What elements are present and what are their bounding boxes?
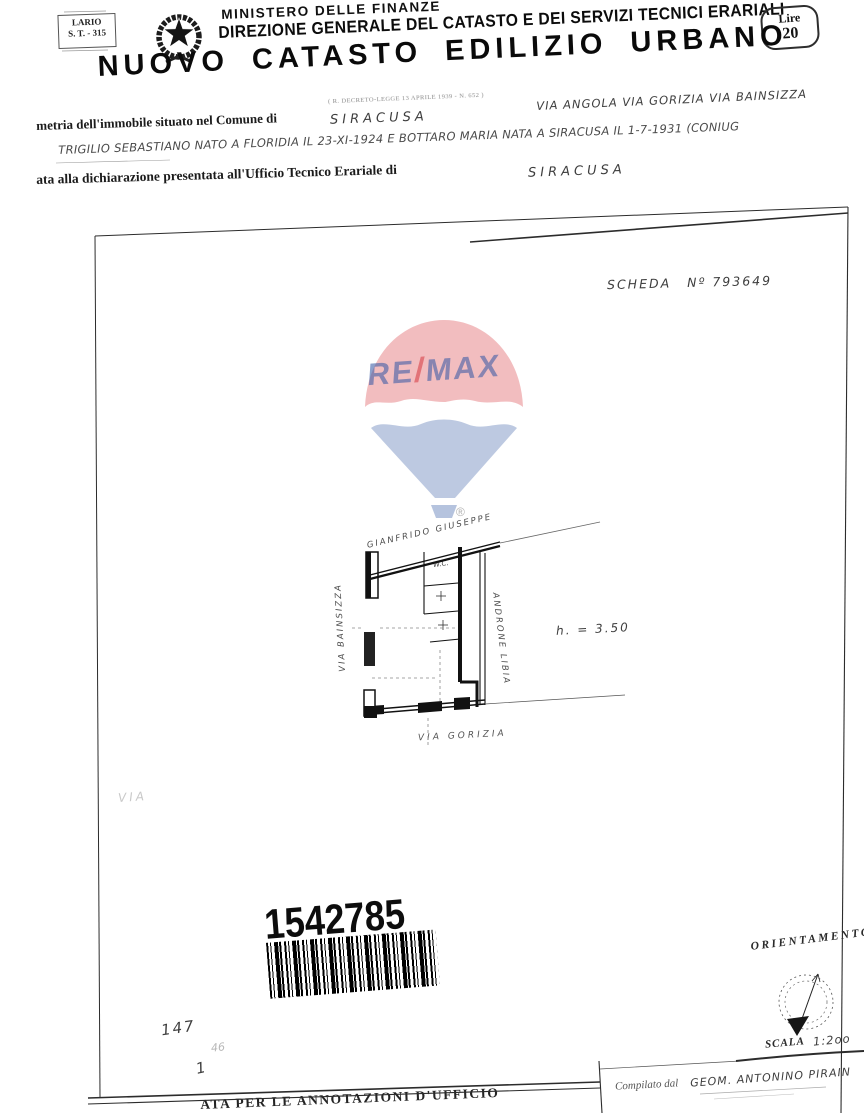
modulario-line2: S. T. - 315 [59, 27, 115, 40]
plan-wc-label: W.C. [433, 559, 450, 569]
plan-street-left-label: VIA BAINSIZZA [333, 583, 348, 672]
orientation-label: ORIENTAMENTO [750, 926, 864, 953]
document-scan: LARIO S. T. - 315 MINISTERO DELLE FINANZ… [0, 0, 864, 1113]
compiled-by-value: GEOM. ANTONINO PIRAIN [690, 1065, 852, 1089]
form-line1-comune-value: SIRACUSA [330, 109, 428, 127]
remax-re: RE [366, 354, 415, 393]
remax-max: MAX [425, 348, 502, 388]
margin-number-1: 1 [194, 1058, 207, 1078]
plan-street-bottom-label: VIA GORIZIA [418, 729, 507, 744]
form-line1-printed: metria dell'immobile situato nel Comune … [36, 110, 277, 134]
scale-value: 1:2oo [812, 1031, 851, 1048]
scheda-number: SCHEDANº 793649 [607, 273, 772, 292]
scheda-label: SCHEDA [607, 275, 672, 292]
form-line1-streets-value: VIA ANGOLA VIA GORIZIA VIA BAINSIZZA [536, 87, 807, 113]
margin-number-147: 147 [160, 1017, 197, 1040]
faint-via-note: VIA [118, 789, 148, 805]
margin-number-46: 46 [210, 1040, 225, 1054]
modulario-stamp-box: LARIO S. T. - 315 [57, 13, 116, 49]
scale-label: SCALA [765, 1035, 806, 1050]
form-line3-ufficio-value: SIRACUSA [528, 162, 626, 180]
registered-trademark-icon: ® [456, 505, 465, 519]
compass-icon [779, 974, 833, 1036]
remax-balloon-watermark-icon [353, 312, 535, 527]
scheda-value: Nº 793649 [687, 273, 772, 290]
annotations-strip-label: ATA PER LE ANNOTAZIONI D'UFFICIO [200, 1085, 500, 1113]
barcode-block: 1542785 [263, 891, 450, 999]
compiled-by-label: Compilato dal [615, 1077, 679, 1092]
title-subnote: ( R. DECRETO-LEGGE 13 APRILE 1939 - N. 6… [328, 92, 484, 106]
plan-height-note: h. = 3.50 [556, 620, 630, 638]
barcode-number: 1542785 [263, 893, 420, 945]
form-line3-printed: ata alla dichiarazione presentata all'Uf… [36, 162, 397, 188]
plan-street-right-label: ANDRONE LIBIA [490, 592, 511, 686]
